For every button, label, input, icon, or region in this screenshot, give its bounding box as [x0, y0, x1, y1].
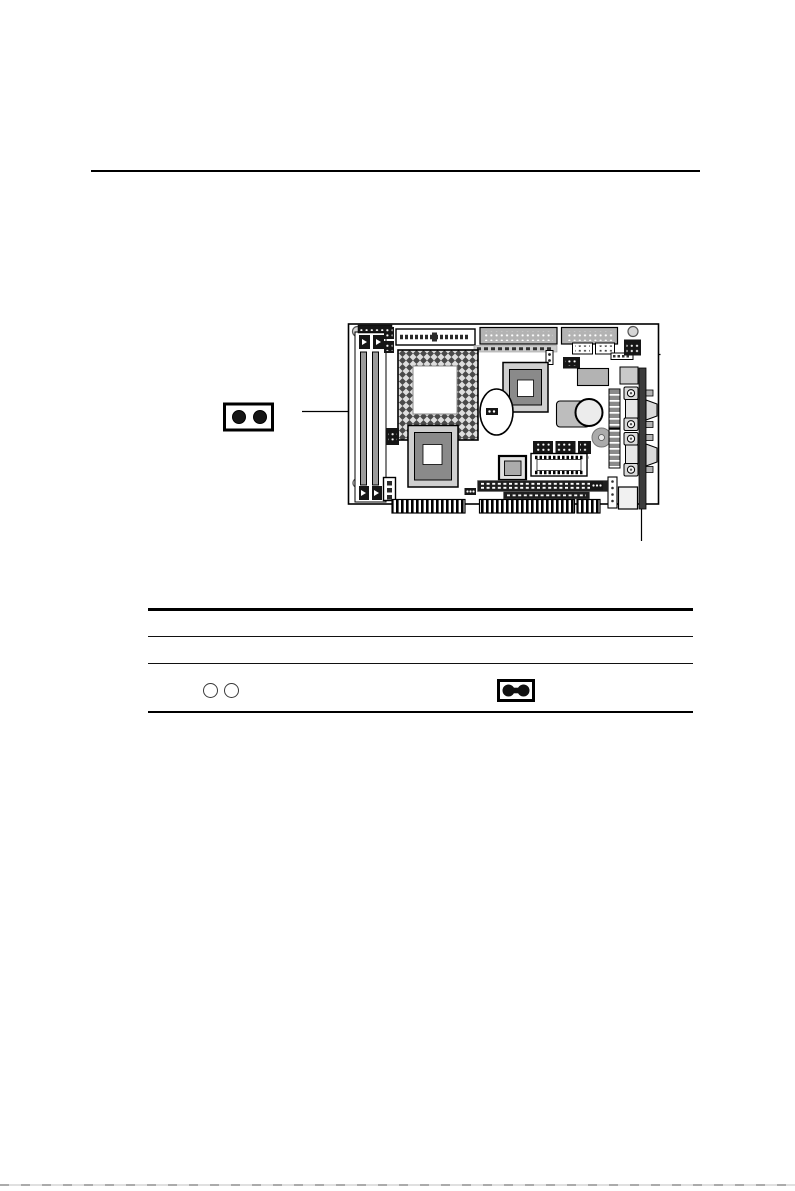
gold-fingers: [577, 500, 600, 514]
bios-dip-chip: [531, 454, 587, 477]
cpu-socket-cavity: [413, 366, 457, 414]
gold-fingers: [480, 500, 575, 514]
jumper-header: [486, 408, 498, 415]
table-rule-bottom: [148, 711, 693, 713]
port-body: [626, 400, 639, 419]
oval-marking: [480, 389, 513, 435]
page-edge-artifact: [0, 1184, 795, 1186]
db-connector-body: [609, 429, 620, 468]
db-connector-body: [609, 389, 620, 428]
rear-block: [619, 487, 638, 509]
port-body: [626, 445, 639, 464]
dsub-port-icon: [646, 400, 657, 420]
jumper-pin: [254, 411, 267, 424]
table-rule-top: [148, 608, 693, 611]
jumper-open-icon: [224, 683, 239, 698]
rear-block: [620, 367, 638, 384]
header-connector: [478, 481, 608, 492]
screw-post: [646, 422, 653, 428]
isa-edge-connector: [392, 500, 600, 514]
screw-post: [646, 467, 653, 473]
board-figure: [0, 0, 795, 620]
table-rule-3: [148, 663, 693, 664]
plcc-chip: [499, 456, 526, 480]
gold-fingers: [392, 500, 465, 514]
metal-bracket: [639, 368, 646, 509]
jumper-closed-icon: [497, 679, 535, 702]
simm-slot-body: [355, 332, 386, 502]
table-rule-2: [148, 636, 693, 637]
mounting-hole-icon: [628, 327, 638, 337]
screw-post: [646, 390, 653, 396]
coin-cell-icon: [576, 399, 603, 426]
screw-post: [646, 435, 653, 441]
regulator-block: [578, 369, 609, 386]
manual-page: [0, 0, 795, 1191]
simm-slot-bar: [373, 352, 379, 485]
dsub-port-icon: [646, 444, 657, 466]
buzzer: [592, 428, 611, 447]
chipset-chip-2: [408, 426, 458, 488]
jumper-pin: [233, 411, 246, 424]
jumper-open-icon: [203, 683, 218, 698]
simm-slot-bar: [361, 352, 367, 485]
simm-slots: [355, 332, 386, 502]
battery: [557, 399, 603, 427]
power-connector: [384, 478, 396, 501]
